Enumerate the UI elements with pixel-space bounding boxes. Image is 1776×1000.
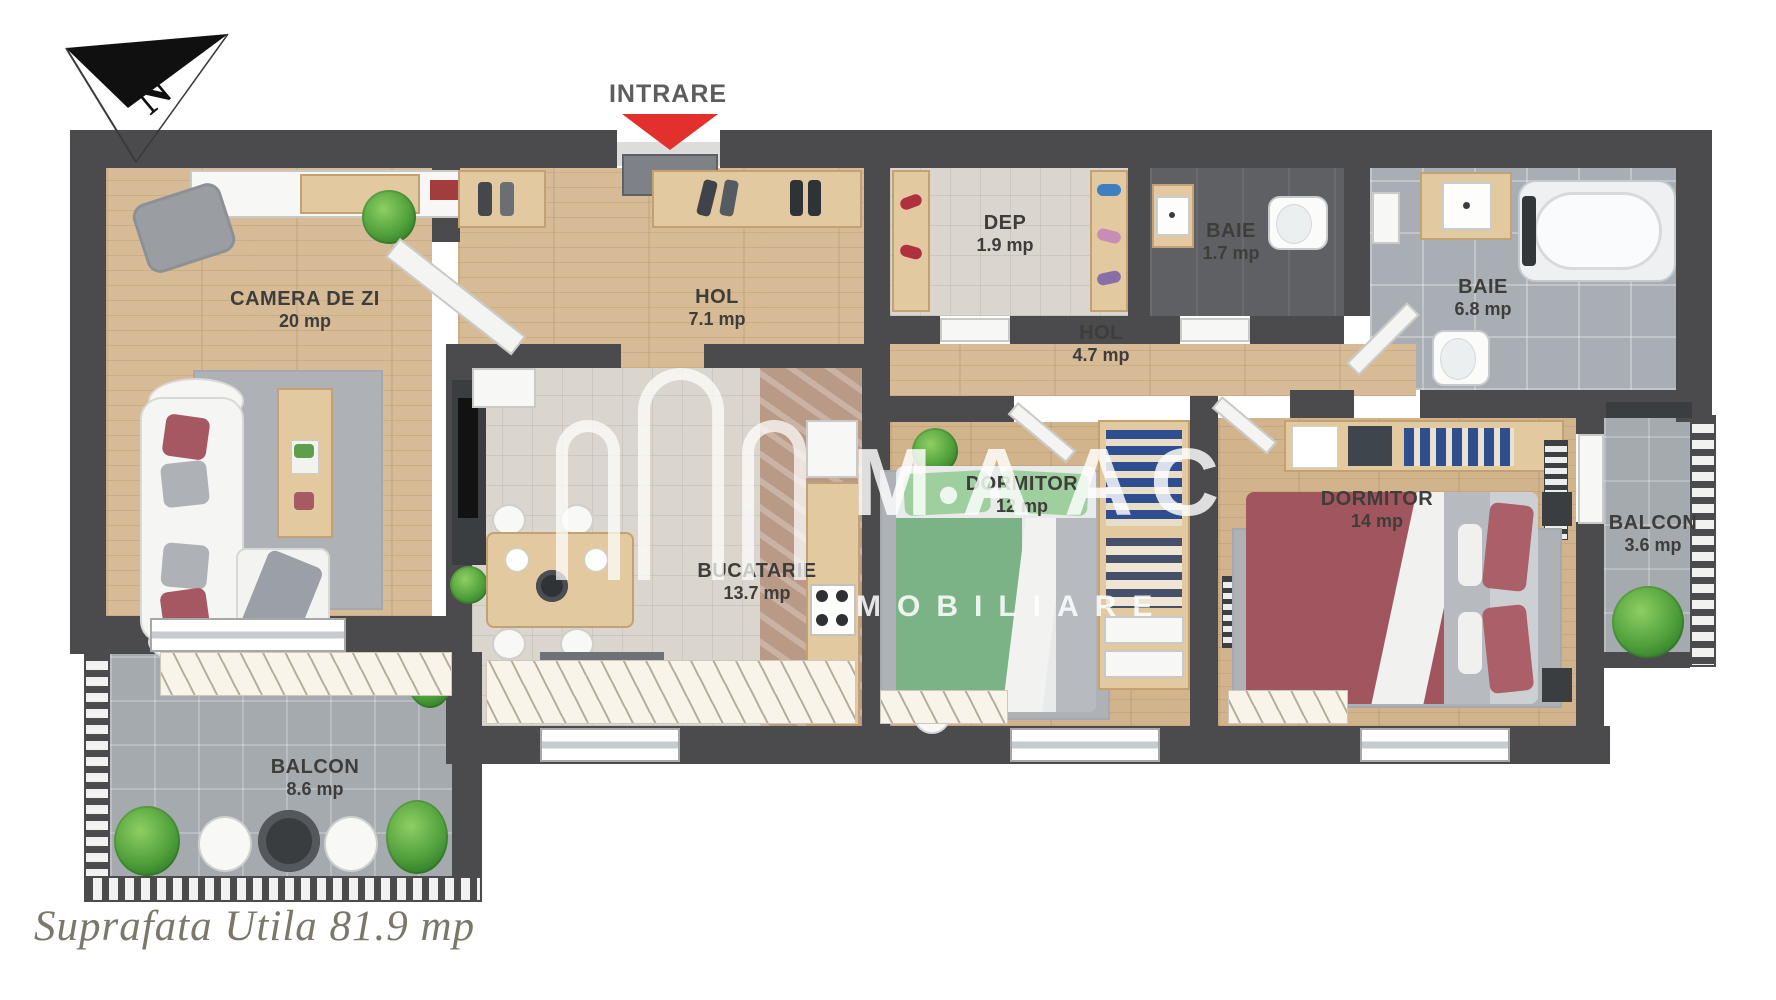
wall <box>70 130 106 654</box>
patio-table <box>258 810 320 872</box>
wall <box>704 344 864 368</box>
bed-pillow <box>1482 604 1535 694</box>
balcony-railing <box>84 652 110 902</box>
balcony-door-window <box>150 618 346 652</box>
folding-doors <box>160 652 452 696</box>
window <box>1010 728 1160 762</box>
sofa-pillow <box>160 542 210 590</box>
north-arrow-icon: N <box>58 30 238 170</box>
wall <box>1576 522 1604 726</box>
toilet-seat <box>1440 338 1476 380</box>
plant <box>450 566 488 604</box>
balcony-lintel <box>1606 402 1692 418</box>
patio-chair <box>198 816 252 872</box>
wardrobe-drawer <box>1104 616 1184 644</box>
shoes <box>1097 184 1121 196</box>
wall <box>864 316 940 344</box>
decor-red <box>294 492 314 510</box>
wall <box>446 344 621 368</box>
wardrobe-drawer <box>1104 650 1184 678</box>
stove-burner <box>836 614 848 626</box>
shoes <box>808 180 821 216</box>
nightstand <box>1542 492 1572 526</box>
wall <box>1010 316 1180 344</box>
toilet-seat <box>1276 204 1312 244</box>
folded-shirt-dark <box>1348 426 1392 466</box>
wall <box>1190 396 1218 726</box>
shoes <box>500 182 514 216</box>
door-balcony-right <box>1578 434 1604 524</box>
plant <box>362 190 416 244</box>
stove-burner <box>836 590 848 602</box>
stove-burner <box>816 590 828 602</box>
folding-doors <box>1228 690 1348 724</box>
shoes <box>790 180 803 216</box>
shoes <box>478 182 492 216</box>
sink-drain <box>1169 212 1175 218</box>
plant <box>386 800 448 874</box>
bed-duvet-green <box>896 518 1022 712</box>
bed-pillow <box>999 470 1089 517</box>
wall <box>1250 316 1344 344</box>
wall <box>1576 418 1604 434</box>
shoe-bench <box>652 170 862 228</box>
balcony-railing <box>84 876 482 902</box>
wall <box>1344 130 1370 316</box>
wall <box>864 130 890 344</box>
bed-blanket-gray <box>1056 518 1096 712</box>
wardrobe-shoe-shelf <box>1106 538 1182 608</box>
sofa-pillow <box>161 413 210 461</box>
bed-pillow <box>1482 502 1535 592</box>
entrance-arrow-icon <box>622 114 718 150</box>
sink-drain <box>1463 202 1470 209</box>
fridge <box>806 420 858 478</box>
bath-shelf <box>1372 192 1400 244</box>
wall <box>1344 390 1354 418</box>
stove-burner <box>816 614 828 626</box>
wardrobe-shelves-clothes <box>1106 430 1182 526</box>
plate <box>505 548 529 572</box>
door-bath-small <box>1180 318 1250 342</box>
bathtub-panel <box>1522 196 1536 266</box>
plant <box>114 806 180 876</box>
bed-bedroom-12 <box>896 466 1096 712</box>
bed-pillow <box>903 470 991 516</box>
wall <box>862 396 1014 422</box>
decor-green <box>294 444 314 458</box>
bed-bedroom-14 <box>1246 492 1538 704</box>
bed-pillow <box>1458 524 1482 586</box>
dining-chair <box>492 628 526 660</box>
balcony-railing <box>1690 415 1716 667</box>
hanging-clothes <box>1404 428 1514 466</box>
patio-chair <box>324 816 378 872</box>
wall <box>1676 130 1712 422</box>
bed-pillow <box>1458 612 1482 674</box>
door-storage <box>940 318 1010 342</box>
plant <box>1612 586 1684 658</box>
floor-plan: CAMERA DE ZI 20 mp HOL 7.1 mp DEP 1.9 mp… <box>0 0 1776 1000</box>
plate <box>584 548 608 572</box>
nightstand <box>1542 668 1572 702</box>
sofa-pillow <box>160 460 210 509</box>
bowl <box>536 570 568 602</box>
shoe-shelf <box>892 170 930 312</box>
wall <box>1290 390 1344 418</box>
bathtub-basin <box>1534 192 1662 270</box>
window <box>1360 728 1510 762</box>
folding-doors <box>486 660 856 724</box>
folded-shirt-white <box>1292 426 1338 468</box>
folding-doors <box>880 690 1008 724</box>
total-area-text: Suprafata Utila 81.9 mp <box>34 902 475 951</box>
kitchen-cabinet <box>472 368 536 408</box>
floor-hall-night <box>864 344 1416 396</box>
tv <box>458 398 478 518</box>
window <box>540 728 680 762</box>
entrance-label: INTRARE <box>588 80 748 109</box>
